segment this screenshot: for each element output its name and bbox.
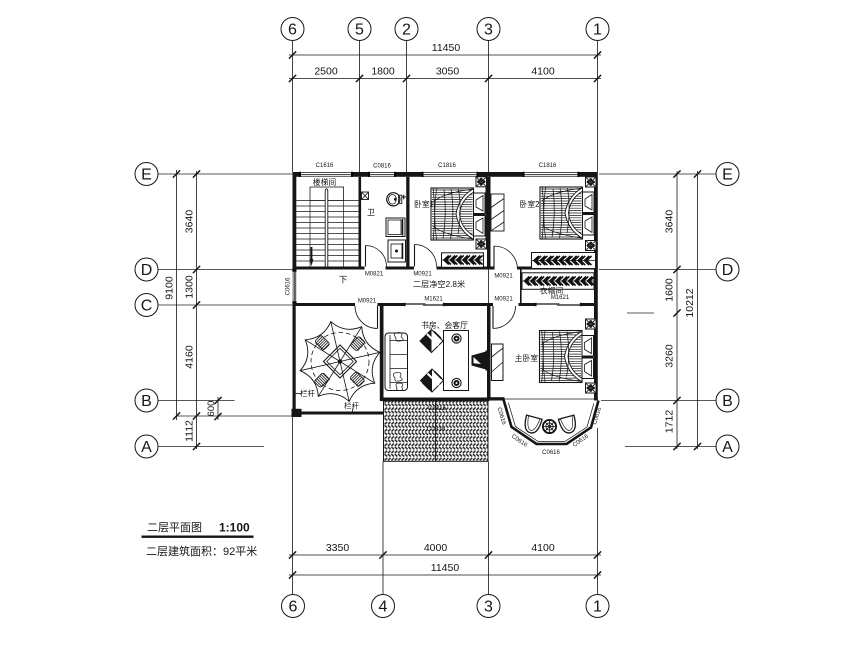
- svg-text:1:100: 1:100: [219, 521, 250, 535]
- svg-text:主卧室: 主卧室: [515, 353, 539, 363]
- svg-text:M1621: M1621: [551, 295, 570, 301]
- svg-text:A: A: [722, 439, 733, 456]
- svg-text:M0921: M0921: [494, 274, 513, 280]
- svg-text:C0616: C0616: [542, 450, 560, 456]
- svg-text:二层建筑面积：92平米: 二层建筑面积：92平米: [146, 544, 257, 558]
- svg-text:M0921: M0921: [358, 299, 377, 305]
- svg-text:C0616: C0616: [285, 277, 291, 295]
- svg-text:6: 6: [289, 599, 298, 616]
- svg-text:5: 5: [355, 22, 364, 39]
- svg-text:衣帽间: 衣帽间: [540, 286, 564, 296]
- svg-text:C: C: [141, 298, 153, 315]
- svg-text:M0821: M0821: [365, 272, 384, 278]
- svg-text:1300: 1300: [184, 275, 196, 299]
- svg-text:下: 下: [339, 275, 348, 285]
- svg-text:1712: 1712: [664, 410, 676, 434]
- svg-text:C1816: C1816: [539, 163, 557, 169]
- svg-text:11450: 11450: [432, 42, 461, 54]
- svg-text:3260: 3260: [664, 344, 676, 368]
- svg-text:3: 3: [484, 22, 493, 39]
- svg-text:B: B: [141, 393, 152, 410]
- svg-text:C1816: C1816: [438, 163, 456, 169]
- svg-text:E: E: [141, 167, 152, 184]
- svg-text:4: 4: [379, 599, 388, 616]
- svg-text:书房、会客厅: 书房、会客厅: [421, 320, 468, 330]
- svg-text:11450: 11450: [431, 562, 460, 574]
- svg-text:3640: 3640: [664, 210, 676, 234]
- svg-text:2: 2: [402, 22, 411, 39]
- svg-text:D: D: [722, 262, 734, 279]
- svg-text:卧室2: 卧室2: [520, 199, 540, 209]
- svg-text:C0816: C0816: [427, 426, 446, 433]
- svg-text:楼梯间: 楼梯间: [313, 177, 337, 187]
- svg-text:M1621: M1621: [424, 297, 443, 303]
- svg-text:E: E: [722, 167, 733, 184]
- svg-text:2500: 2500: [314, 66, 338, 78]
- svg-text:二层平面图: 二层平面图: [147, 521, 202, 534]
- svg-text:4160: 4160: [184, 345, 196, 369]
- svg-text:10212: 10212: [684, 288, 696, 317]
- svg-text:4100: 4100: [531, 542, 555, 554]
- svg-text:卫: 卫: [367, 208, 375, 217]
- svg-text:4100: 4100: [531, 66, 555, 78]
- svg-text:二层净空2.8米: 二层净空2.8米: [413, 279, 465, 289]
- svg-text:B: B: [722, 393, 733, 410]
- svg-text:600: 600: [206, 401, 217, 417]
- svg-text:C0816: C0816: [373, 164, 391, 170]
- svg-text:A: A: [141, 439, 152, 456]
- svg-text:C1616: C1616: [316, 163, 334, 169]
- svg-text:1: 1: [593, 599, 602, 616]
- svg-text:栏杆: 栏杆: [344, 401, 359, 411]
- svg-text:3350: 3350: [326, 542, 350, 554]
- svg-text:1600: 1600: [664, 278, 676, 302]
- svg-text:3: 3: [484, 599, 493, 616]
- svg-text:M0921: M0921: [494, 297, 513, 303]
- svg-text:9100: 9100: [164, 276, 176, 300]
- svg-text:栏杆: 栏杆: [300, 388, 315, 398]
- svg-text:4000: 4000: [424, 542, 448, 554]
- svg-text:3640: 3640: [184, 210, 196, 234]
- svg-text:1800: 1800: [371, 66, 395, 78]
- svg-text:D: D: [141, 262, 153, 279]
- svg-text:M0921: M0921: [413, 272, 432, 278]
- svg-text:卧室1: 卧室1: [414, 199, 434, 209]
- svg-text:C0816: C0816: [428, 405, 447, 412]
- svg-text:1112: 1112: [184, 420, 196, 442]
- svg-text:3050: 3050: [436, 66, 460, 78]
- svg-text:6: 6: [288, 22, 297, 39]
- svg-text:1: 1: [593, 22, 602, 39]
